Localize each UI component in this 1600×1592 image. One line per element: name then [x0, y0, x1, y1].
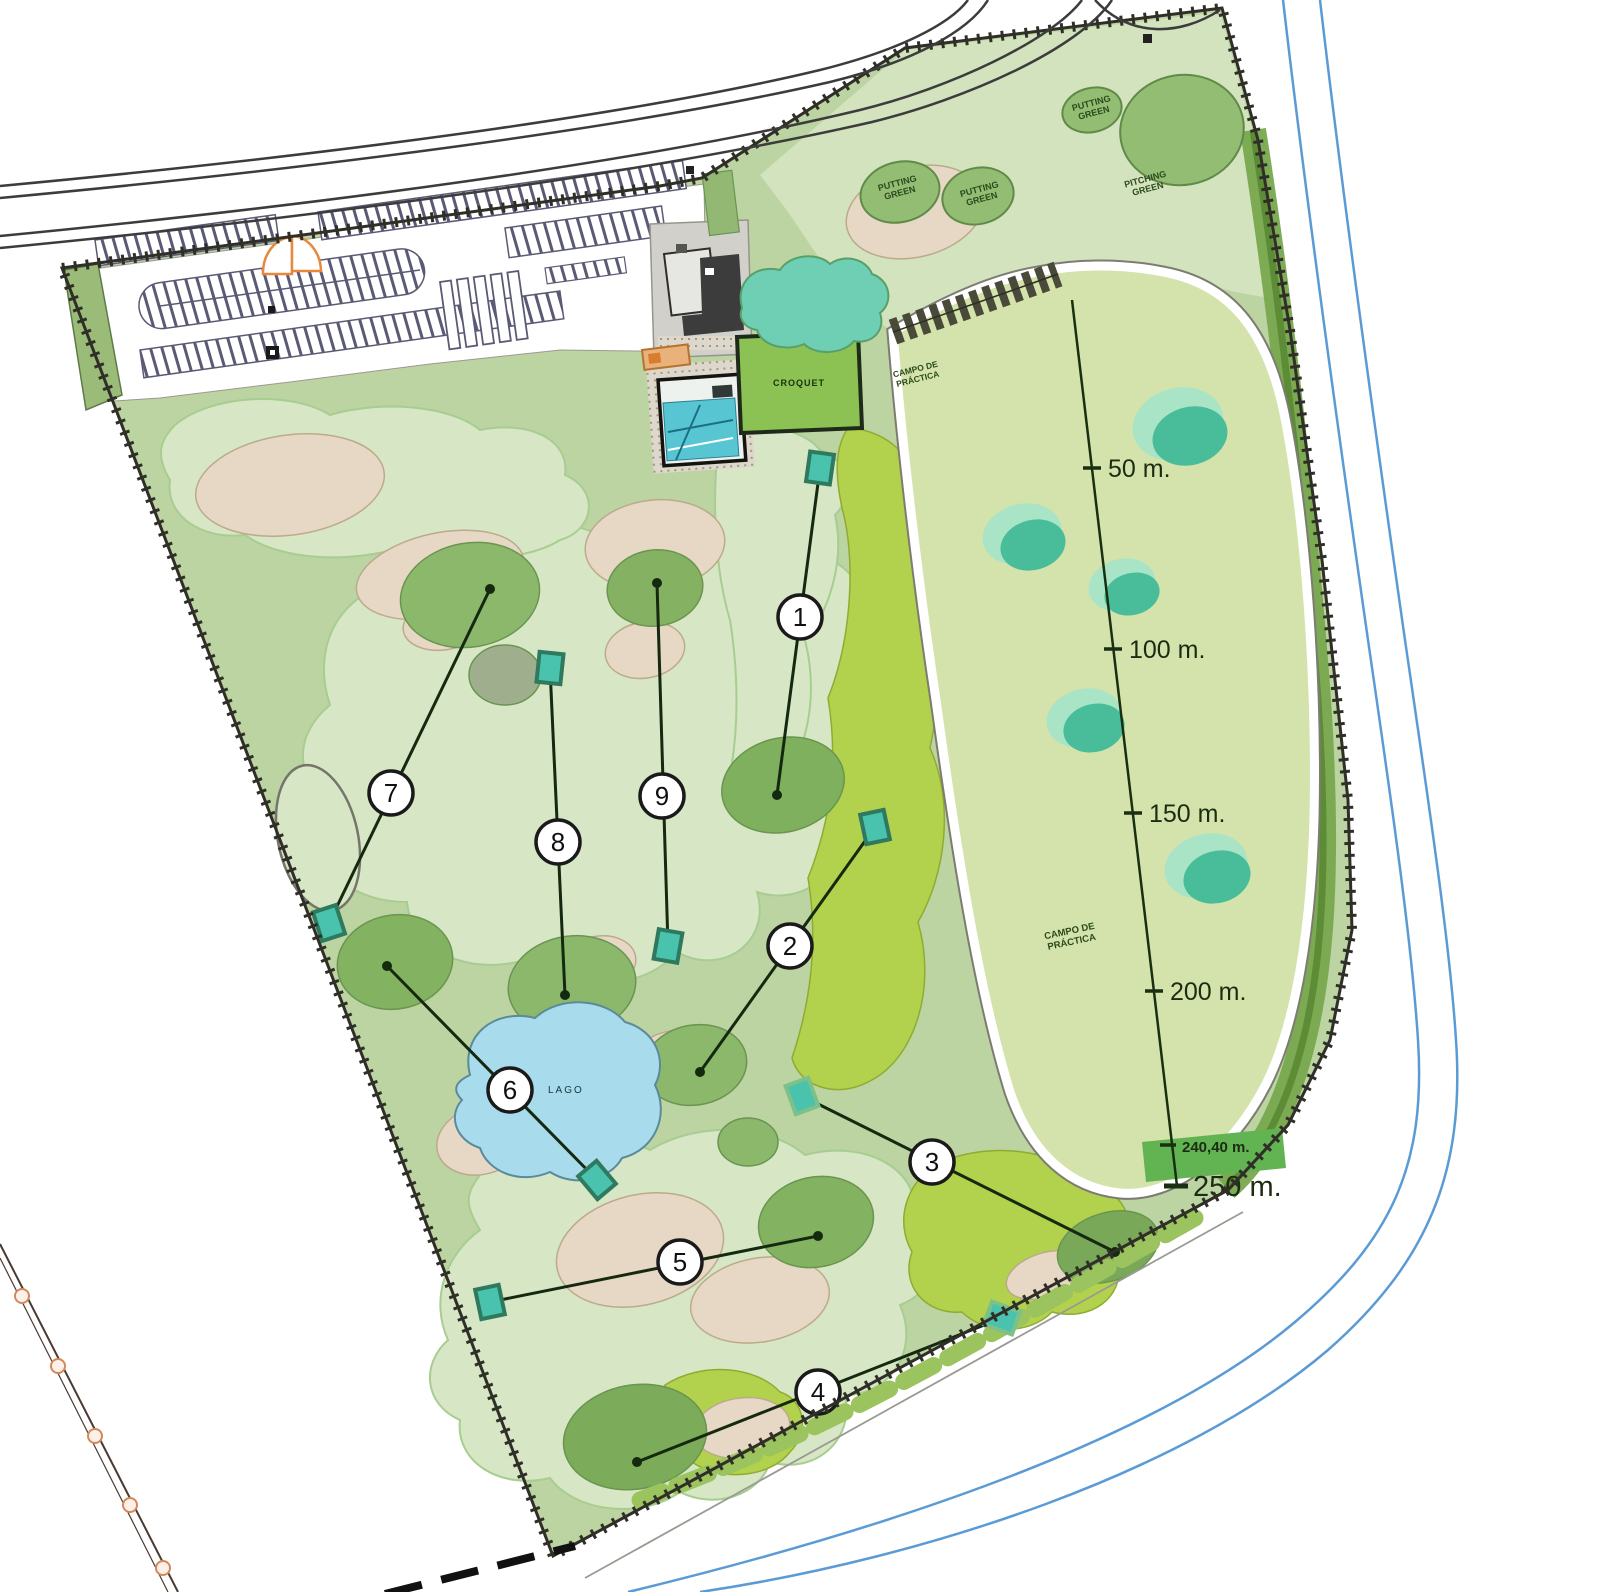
tree-blob: [469, 645, 541, 705]
distance-label-50m: 50 m.: [1108, 455, 1171, 483]
distance-label-150m: 150 m.: [1149, 800, 1225, 828]
distance-label-250m: 250 m.: [1193, 1171, 1282, 1203]
lake: LAGO: [455, 1002, 661, 1180]
hole-green-dot: [695, 1067, 705, 1077]
hole-number: 2: [783, 931, 797, 961]
site-plan-canvas: LAGO 50 m: [0, 0, 1600, 1592]
boundary-marker-square: [686, 166, 694, 174]
utility-node: [156, 1561, 170, 1575]
hole-green-dot: [560, 990, 570, 1000]
tree-blob: [718, 1118, 778, 1166]
hole-number: 1: [793, 602, 807, 632]
distance-label-100m: 100 m.: [1129, 636, 1205, 664]
utility-node: [51, 1359, 65, 1373]
hole-number: 7: [384, 778, 398, 808]
hole-number: 4: [811, 1377, 825, 1407]
distance-label-200m: 200 m.: [1170, 978, 1246, 1006]
hole-number: 5: [673, 1247, 687, 1277]
lake-label: LAGO: [548, 1085, 584, 1096]
hole-number: 8: [551, 827, 565, 857]
clubhouse-annex: [676, 244, 687, 253]
hole-number: 9: [655, 781, 669, 811]
hole-green-dot: [772, 790, 782, 800]
tee-marker: [806, 451, 834, 484]
distance-label-240m: 240,40 m.: [1182, 1139, 1250, 1156]
parking-symbol-inner: [270, 350, 275, 355]
hole-number: 6: [503, 1075, 517, 1105]
pool-hut-door: [648, 353, 661, 364]
hole-green-dot: [813, 1231, 823, 1241]
tee-marker: [654, 929, 683, 963]
tee-marker: [860, 810, 890, 844]
hole-green-dot: [652, 578, 662, 588]
south-dashed-line: [385, 1546, 575, 1592]
parking-marker-dot: [268, 306, 275, 313]
hole-green-dot: [485, 584, 495, 594]
hole-number: 3: [925, 1147, 939, 1177]
utility-line-secondary: [0, 1258, 168, 1592]
utility-node: [15, 1289, 29, 1303]
utility-node: [88, 1429, 102, 1443]
hole-green-dot: [382, 961, 392, 971]
clubhouse-roof-detail: [705, 268, 714, 275]
pool-dark-block: [712, 385, 733, 398]
utility-node: [123, 1498, 137, 1512]
southwest-utility-line: [0, 1244, 178, 1592]
pond: [741, 256, 889, 352]
tee-marker: [536, 652, 563, 684]
tee-marker: [475, 1285, 505, 1319]
site-plan-map: LAGO 50 m: [0, 0, 1600, 1592]
boundary-marker-square: [1143, 34, 1152, 43]
croquet-label: CROQUET: [773, 378, 825, 388]
hole-green-dot: [632, 1457, 642, 1467]
pool-water: [663, 398, 739, 461]
